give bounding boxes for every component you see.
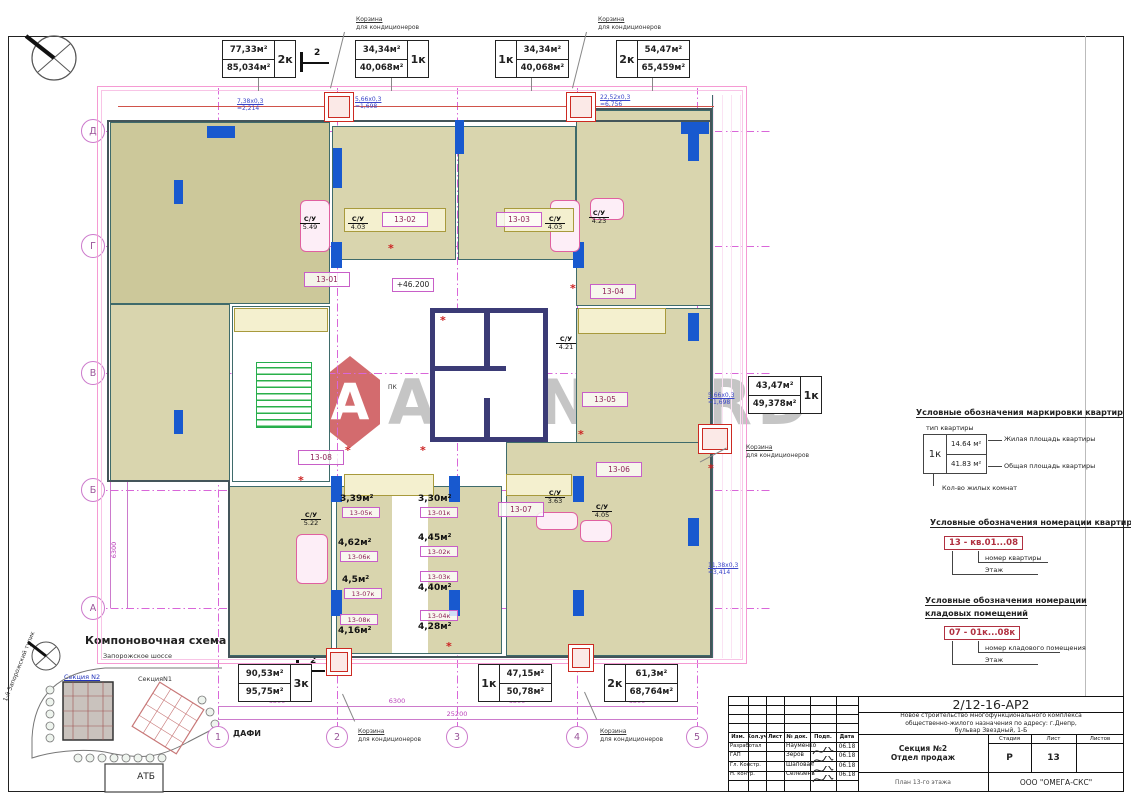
titleblock-line <box>784 696 785 792</box>
apartment-area-label: 54,47м²65,459м²2к <box>616 40 690 78</box>
leader-line <box>652 78 653 91</box>
kitchen-counter <box>234 308 328 332</box>
legend-apartment-sample: 1к 14.64 м² 41.83 м² <box>923 434 987 474</box>
legend-apartment-marking-title: Условные обозначения маркировки квартир <box>916 408 1123 418</box>
facade-wall <box>107 120 712 122</box>
project-description: Новое строительство многофункционального… <box>858 713 1124 734</box>
north-arrow-icon <box>14 14 94 94</box>
dim-line <box>218 706 697 707</box>
storage-number-label: 13-06к <box>340 551 378 562</box>
legend-rooms-note: Кол-во жилых комнат <box>942 484 1017 492</box>
titleblock-col-header: Кол.уч <box>748 733 766 741</box>
storage-number-label: 13-08к <box>340 614 378 625</box>
titleblock-col-header: № док. <box>784 733 810 741</box>
bathroom-label: С/У4.21 <box>556 336 576 352</box>
legend-line <box>952 641 953 664</box>
titleblock-line <box>858 712 1124 713</box>
apartment-area-label: 43,47м²49,378м²1к <box>748 376 822 414</box>
legend-type-value: 1к <box>924 435 947 473</box>
asterisk-mark: * <box>440 316 450 326</box>
facade-wall <box>576 108 712 110</box>
titleblock-col-header: Дата <box>836 733 858 741</box>
legend-floor-note: Этаж <box>985 566 1003 574</box>
legend-line <box>988 440 1002 441</box>
ac-basket <box>698 424 732 454</box>
column-window <box>688 313 699 341</box>
storage-number-label: 13-02к <box>420 546 458 557</box>
storage-number-label: 13-01к <box>420 507 458 518</box>
legend-line <box>952 551 953 574</box>
axis-circle-col: 5 <box>686 726 708 748</box>
kitchen-counter <box>578 308 666 334</box>
signature-scribble <box>812 769 834 778</box>
bathroom-label: С/У4.03 <box>545 216 565 232</box>
legend-apartment-number-note: номер квартиры <box>985 554 1041 562</box>
dim-total-label: 25200 <box>442 710 472 718</box>
room-area <box>332 126 456 260</box>
storage-area-label: 3,30м² <box>418 494 452 504</box>
facade-wall <box>228 482 230 656</box>
titleblock-line <box>858 696 859 792</box>
facade-dimension-note: 22,52х0,3=6,756 <box>600 94 630 108</box>
ac-basket-note: Корзинадля кондиционеров <box>746 444 809 459</box>
bathtub-fixture <box>296 534 328 584</box>
axis-circle-col: 4 <box>566 726 588 748</box>
storage-area-label: 4,40м² <box>418 583 452 593</box>
bathroom-label: С/У4.23 <box>589 210 609 226</box>
elevator-divider <box>430 366 506 371</box>
facade-dimension-note: 5,66х0,3=1,698 <box>708 392 734 406</box>
legend-storage-numbering-title1: Условные обозначения номерации <box>925 596 1087 606</box>
legend-line <box>978 551 979 562</box>
apartment-number-label: 13-05 <box>582 392 628 407</box>
asterisk-mark: * <box>420 446 430 456</box>
bathroom-label: С/У4.03 <box>348 216 368 232</box>
legend-line <box>978 562 1048 563</box>
bathroom-label: С/У5.22 <box>301 512 321 528</box>
apartment-area-label: 34,34м²40,068м²1к <box>495 40 569 78</box>
titleblock-col-header: Подп. <box>810 733 836 741</box>
legend-storage-number-note: номер кладового помещения <box>985 644 1086 652</box>
elevator-divider <box>484 308 490 370</box>
dafi-label: ДАФИ <box>233 729 261 738</box>
apartment-area-label: 90,53м²95,75м²3к <box>238 664 312 702</box>
legend-living-note: Жилая площадь квартиры <box>1004 435 1095 443</box>
organization-name: ООО "ОМЕГА-СКС" <box>988 772 1124 792</box>
axis-circle-col: 1 <box>207 726 229 748</box>
legend-total-note: Общая площадь квартиры <box>1004 462 1095 470</box>
signature-scribble <box>812 750 834 759</box>
asterisk-mark: * <box>446 642 456 652</box>
titleblock-role: Н. контр. <box>730 771 766 779</box>
atb-label: АТБ <box>117 772 175 782</box>
storage-number-label: 13-05к <box>342 507 380 518</box>
leader-line <box>391 78 392 91</box>
signature-scribble <box>812 741 834 750</box>
apartment-area-label: 61,3м²68,764м²2к <box>604 664 678 702</box>
elevator-divider <box>484 398 490 442</box>
titleblock-role: ГАП <box>730 752 766 760</box>
section-mark-line <box>303 62 329 64</box>
titleblock-date: 06.18 <box>836 752 858 760</box>
titleblock-stage-header: Листов <box>1076 735 1124 743</box>
storage-area-label: 4,62м² <box>338 538 372 548</box>
storage-number-label: 13-04к <box>420 610 458 621</box>
floor-plan-sheet: A AVANGARD 2 2 Каналсм. ВК ПК +46.200 ДА… <box>0 0 1131 800</box>
legend-total-area: 41.83 м² <box>947 455 986 474</box>
column-window <box>688 518 699 546</box>
storage-area-label: 4,5м² <box>342 575 369 585</box>
bathroom-label: С/У5.49 <box>300 216 320 232</box>
storage-area-label: 4,16м² <box>338 626 372 636</box>
column-window <box>573 476 584 502</box>
legend-storage-code: 07 - 01к...08к <box>944 626 1020 640</box>
stage-value: Р <box>988 744 1031 771</box>
legend-apartment-code: 13 - кв.01...08 <box>944 536 1023 550</box>
legend-line <box>952 664 1038 665</box>
column-window <box>331 242 342 268</box>
ac-basket-note: Корзинадля кондиционеров <box>600 728 663 743</box>
ac-basket <box>324 92 354 122</box>
apartment-number-label: 13-08 <box>298 450 344 465</box>
ac-basket <box>566 92 596 122</box>
leader-line <box>531 78 532 91</box>
legend-floor-note: Этаж <box>985 656 1003 664</box>
axis-circle-col: 3 <box>446 726 468 748</box>
titleblock-date: 06.18 <box>836 771 858 779</box>
titleblock-date: 06.18 <box>836 762 858 770</box>
legend-line <box>952 574 1038 575</box>
facade-dimension-note: 5,66х0,3=1,698 <box>355 96 381 110</box>
titleblock-date: 06.18 <box>836 743 858 751</box>
column-window <box>455 120 464 154</box>
column-window <box>174 410 183 434</box>
leader-line <box>258 78 259 91</box>
section-mark-label: 2 <box>314 48 320 58</box>
asterisk-mark: * <box>708 464 718 474</box>
room-area <box>110 122 330 304</box>
column-window <box>573 590 584 616</box>
titleblock-role: Разработал <box>730 743 766 751</box>
column-window <box>333 148 342 188</box>
kitchen-counter <box>344 474 434 496</box>
column-window <box>207 126 235 138</box>
titleblock-stage-header: Стадия <box>988 735 1031 743</box>
ac-basket <box>326 648 352 676</box>
sheet-value: 13 <box>1031 744 1076 771</box>
asterisk-mark: * <box>298 476 308 486</box>
bathtub-fixture <box>580 520 612 542</box>
facade-wall <box>107 120 109 482</box>
legend-line <box>988 466 1002 467</box>
facade-wall <box>228 656 712 658</box>
staircase <box>256 362 312 428</box>
apartment-number-label: 13-06 <box>596 462 642 477</box>
dim-line <box>218 719 697 720</box>
titleblock-line <box>766 696 767 792</box>
column-window <box>174 180 183 204</box>
legend-line <box>978 652 1060 653</box>
storage-number-label: 13-03к <box>420 571 458 582</box>
dim-label: 6300 <box>382 697 412 705</box>
room-area <box>110 304 230 482</box>
plan-name-cell: План 13-го этажа <box>858 772 988 792</box>
section-dept-cell: Секция №2Отдел продаж <box>858 736 988 770</box>
apartment-area-label: 77,33м²85,034м²2к <box>222 40 296 78</box>
asterisk-mark: * <box>345 446 355 456</box>
apartment-number-label: 13-04 <box>590 284 636 299</box>
bathroom-label: С/У4.05 <box>592 504 612 520</box>
legend-apartment-numbering-title: Условные обозначения номерации квартир <box>930 518 1131 528</box>
axis-circle-col: 2 <box>326 726 348 748</box>
legend-storage-numbering-title2: кладовых помещений <box>925 609 1028 619</box>
legend-living-area: 14.64 м² <box>947 435 986 455</box>
asterisk-mark: * <box>578 430 588 440</box>
titleblock-col-header: Изм. <box>728 733 748 741</box>
facade-dimension-note: 11,38х0,3=3,414 <box>708 562 738 576</box>
ac-basket-note: Корзинадля кондиционеров <box>358 728 421 743</box>
legend-line <box>978 641 979 652</box>
titleblock-col-header: Лист <box>766 733 784 741</box>
apartment-number-label: 13-01 <box>304 272 350 287</box>
ac-basket <box>568 644 594 672</box>
storage-area-label: 4,45м² <box>418 533 452 543</box>
signature-scribble <box>812 760 834 769</box>
facade-dimension-note: 7,38х0,3=2,214 <box>237 98 263 112</box>
asterisk-mark: * <box>388 244 398 254</box>
titleblock-role: Гл. Констр. <box>730 762 766 770</box>
titleblock-line <box>988 743 1124 744</box>
titleblock-stage-header: Лист <box>1031 735 1076 743</box>
apartment-number-label: 13-07 <box>498 502 544 517</box>
storage-area-label: 3,39м² <box>340 494 374 504</box>
column-window <box>688 133 699 161</box>
titleblock-line <box>858 772 1124 773</box>
ac-basket-note: Корзинадля кондиционеров <box>356 16 419 31</box>
legend-apartment-type-caption: тип квартиры <box>926 424 973 432</box>
sheets-value <box>1076 744 1124 771</box>
apartment-number-label: 13-02 <box>382 212 428 227</box>
drawing-code: 2/12-16-АР2 <box>858 696 1124 712</box>
bathroom-label: С/У3.63 <box>545 490 565 506</box>
apartment-area-label: 47,15м²50,78м²1к <box>478 664 552 702</box>
ac-basket-note: Корзинадля кондиционеров <box>598 16 661 31</box>
apartment-number-label: 13-03 <box>496 212 542 227</box>
storage-area-label: 4,28м² <box>418 622 452 632</box>
storage-number-label: 13-07к <box>344 588 382 599</box>
asterisk-mark: * <box>570 284 580 294</box>
facade-wall <box>107 480 230 482</box>
column-window <box>331 590 342 616</box>
apartment-area-label: 34,34м²40,068м²1к <box>355 40 429 78</box>
legend-line <box>933 474 934 486</box>
